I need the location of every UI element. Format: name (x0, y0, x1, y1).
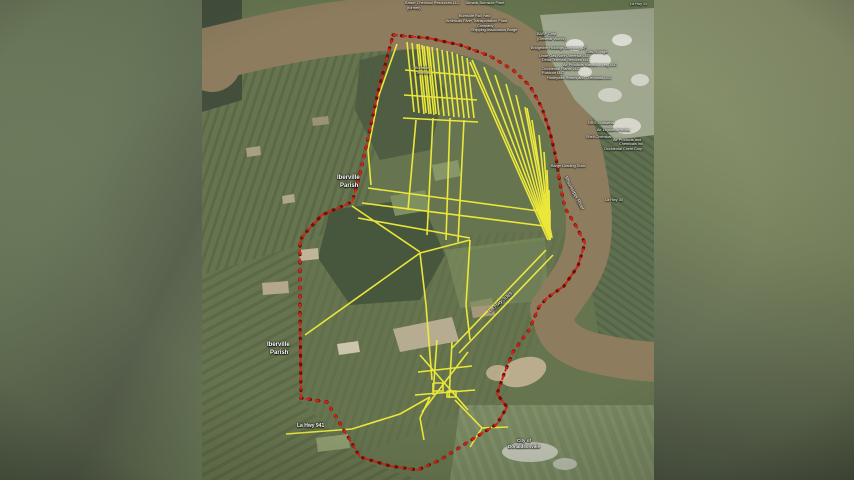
blurred-backdrop-left (0, 0, 202, 480)
map-canvas (202, 0, 654, 480)
aerial-map (202, 0, 654, 480)
blurred-backdrop-right (654, 0, 854, 480)
screenshot-stage: Kaiser Chemical Resources LLC(former)Alm… (0, 0, 854, 480)
